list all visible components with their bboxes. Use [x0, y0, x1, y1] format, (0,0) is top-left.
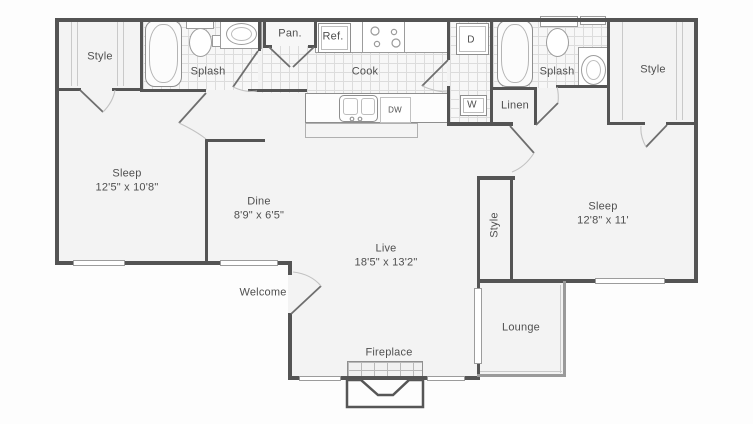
label-entry-welcome: Welcome [239, 286, 286, 300]
wall-linen-right [534, 87, 537, 125]
wall-pantry-bottom-b [308, 45, 317, 48]
wall-laundry-left-lower [447, 86, 450, 126]
label-bedroom-sleep-left: Sleep 12'5" x 10'8" [96, 168, 159, 195]
lounge-wall-right [563, 281, 566, 377]
wall-dine-stub [205, 139, 265, 142]
closet-right-shelf-line [682, 22, 683, 120]
closet-left-shelf-line [71, 22, 72, 86]
closet-left-shelf-line [77, 22, 78, 86]
wall-bedroom-right-west [510, 176, 513, 280]
wall-closet-left-bath [140, 18, 143, 92]
wall-kitchen-east-upper [447, 18, 450, 60]
wall-walkcloset-left [477, 176, 480, 283]
toilet-right-bowl [546, 28, 569, 57]
label-fireplace: Fireplace [365, 346, 412, 360]
wall-closet-right-bottom-a [607, 122, 645, 125]
sink-left-basin [231, 27, 252, 41]
closet-left-shelf-line [123, 22, 124, 86]
label-living-live: Live 18'5" x 13'2" [355, 243, 418, 270]
wall-entry-lower [288, 313, 292, 380]
window-living-right [427, 376, 465, 381]
lounge-inner-line-right [560, 285, 561, 373]
label-bath-splash-left: Splash [191, 65, 226, 79]
island-sink-basin [361, 98, 375, 115]
wall-bath-right-south [556, 85, 610, 88]
label-linen: Linen [501, 99, 529, 113]
wall-pantry-left [263, 18, 266, 48]
closet-right-shelf-line [622, 22, 623, 120]
label-dining-dine: Dine 8'9" x 6'5" [234, 196, 284, 223]
wall-closet-right-bottom-b [666, 122, 698, 125]
wall-laundry-right [490, 18, 493, 126]
lounge-wall-bottom [477, 374, 566, 377]
wall-closet-left-bottom-b [112, 88, 143, 91]
fireplace-box [347, 380, 423, 407]
sink-right-basin [586, 60, 601, 80]
wall-bedroom-left-east [205, 139, 208, 264]
label-closet-style-right: Style [640, 63, 665, 77]
wall-pantry-bottom-a [263, 45, 272, 48]
label-dryer: D [467, 33, 474, 47]
bathtub-left [145, 20, 182, 87]
fireplace-firebox [347, 380, 423, 395]
label-patio-lounge: Lounge [502, 321, 540, 335]
label-bedroom-sleep-right: Sleep 12'8" x 11' [577, 201, 629, 228]
label-refrigerator: Ref. [323, 30, 344, 44]
wall-bath-left-east-upper [258, 18, 261, 51]
window-bedroom-right [595, 278, 665, 284]
window-living-left [299, 376, 341, 381]
label-washer: W [467, 98, 477, 112]
island-sink-basin [343, 98, 358, 115]
wall-top [55, 18, 698, 22]
lounge-slider-door [474, 288, 482, 364]
wall-entry-upper [288, 261, 292, 275]
wall-linen-top [493, 87, 537, 90]
lounge-inner-line-bottom [480, 371, 562, 372]
wall-hall-bottom [248, 89, 307, 92]
island-counter-overhang [305, 123, 418, 138]
toilet-left-bowl [189, 28, 212, 57]
label-kitchen-cook: Cook [352, 65, 378, 79]
wall-bath-right-east [607, 18, 610, 125]
wall-right [694, 18, 698, 283]
wall-laundry-linen-bottom [447, 122, 513, 126]
label-dishwasher: DW [388, 103, 402, 117]
closet-right-shelf-line [676, 22, 677, 120]
bathtub-right [497, 20, 533, 87]
floor-plan: StyleSplashPan.Ref.CookDWLinenSplashStyl… [0, 0, 753, 424]
window-dine [220, 260, 278, 266]
closet-left-shelf-line [117, 22, 118, 86]
stove [362, 20, 405, 53]
window-bedroom-left [73, 260, 125, 266]
label-pantry: Pan. [278, 27, 301, 41]
wall-bath-left-bottom [143, 89, 206, 92]
label-closet-style-left: Style [87, 50, 112, 64]
wall-pantry-right [314, 18, 317, 48]
wall-closet-left-bottom-a [55, 88, 81, 91]
wall-left [55, 18, 59, 265]
label-bath-splash-right: Splash [540, 65, 575, 79]
label-closet-style-vertical: Style [488, 212, 502, 237]
